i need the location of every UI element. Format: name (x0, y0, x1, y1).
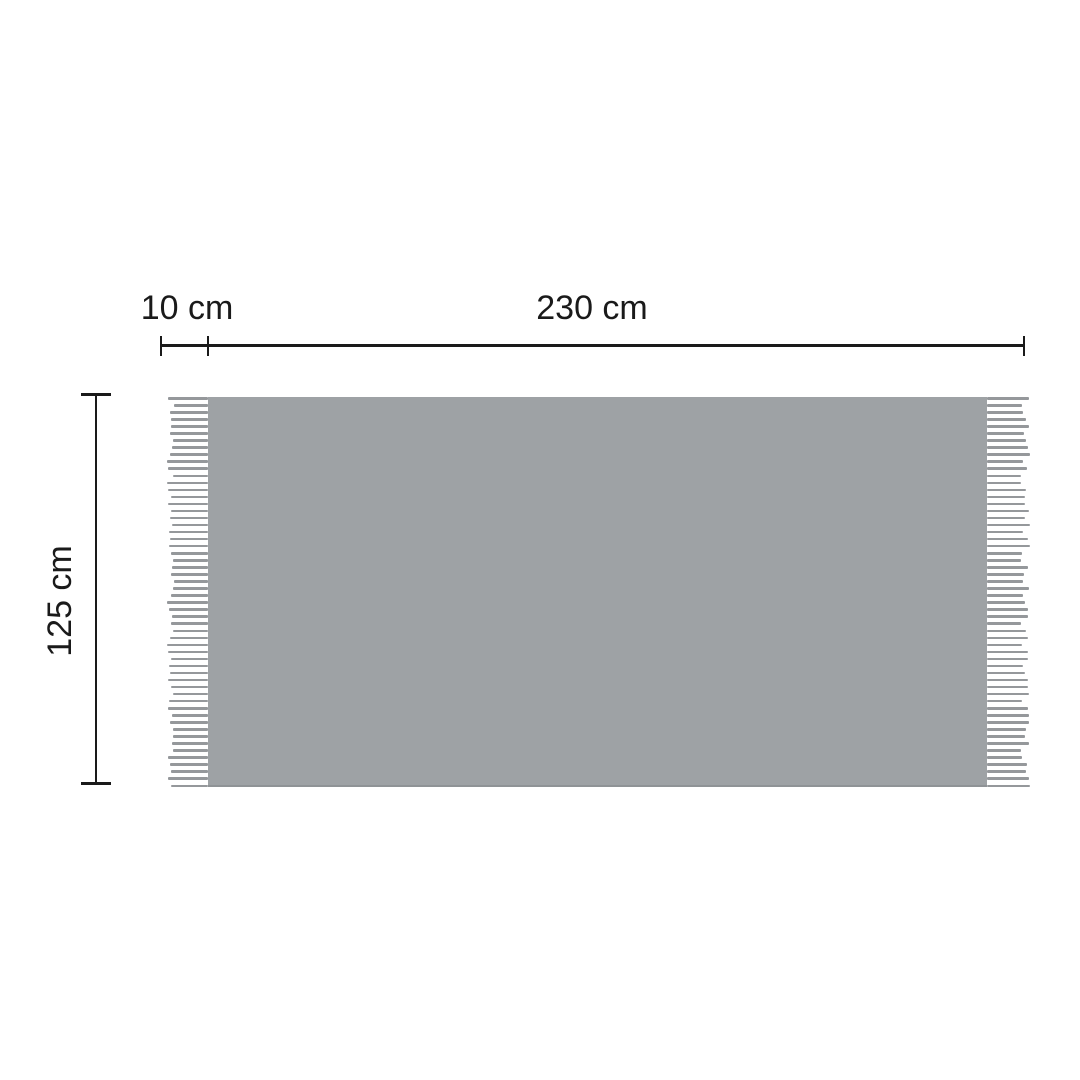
body-width-label: 230 cm (536, 291, 648, 325)
fringe-stroke (170, 721, 208, 724)
fringe-stroke (987, 475, 1021, 478)
width-dimension-line (161, 344, 1025, 347)
width-dimension-tick-left (160, 336, 162, 356)
fringe-stroke (987, 531, 1023, 534)
blanket-body (208, 397, 987, 787)
fringe-stroke (172, 615, 208, 618)
fringe-stroke (168, 467, 208, 470)
height-dimension-line (95, 394, 97, 784)
fringe-stroke (987, 672, 1025, 675)
fringe-stroke (987, 510, 1029, 513)
fringe-stroke (987, 446, 1028, 449)
fringe-stroke (174, 404, 208, 407)
fringe-stroke (171, 622, 208, 625)
fringe-stroke (987, 622, 1021, 625)
fringe-stroke (987, 742, 1029, 745)
fringe-stroke (169, 700, 208, 703)
fringe-stroke (987, 559, 1021, 562)
fringe-stroke (170, 538, 208, 541)
fringe-stroke (170, 517, 209, 520)
fringe-stroke (987, 644, 1022, 647)
height-dimension-cap-bottom (81, 782, 111, 785)
fringe-stroke (987, 665, 1023, 668)
fringe-stroke (987, 489, 1026, 492)
fringe-stroke (173, 439, 208, 442)
fringe-stroke (987, 608, 1028, 611)
width-dimension-tick-right (1023, 336, 1025, 356)
fringe-stroke (987, 538, 1028, 541)
fringe-stroke (171, 496, 208, 499)
fringe-stroke (169, 545, 208, 548)
fringe-stroke (167, 644, 208, 647)
fringe-stroke (168, 777, 208, 780)
fringe-stroke (167, 460, 208, 463)
fringe-stroke (987, 749, 1021, 752)
fringe-stroke (170, 672, 208, 675)
fringe-stroke (987, 630, 1026, 633)
fringe-stroke (987, 714, 1029, 717)
fringe-stroke (171, 418, 208, 421)
fringe-stroke (987, 756, 1022, 759)
fringe-stroke (171, 594, 208, 597)
fringe-stroke (170, 432, 208, 435)
fringe-stroke (987, 785, 1030, 788)
fringe-stroke (987, 615, 1028, 618)
product-dimension-diagram: 10 cm 230 cm 125 cm (0, 0, 1080, 1080)
fringe-stroke (171, 552, 208, 555)
fringe-stroke (987, 735, 1025, 738)
fringe-stroke (987, 679, 1028, 682)
fringe-stroke (987, 601, 1025, 604)
fringe-stroke (172, 714, 208, 717)
blanket-fringe-right (987, 397, 1030, 787)
fringe-stroke (169, 608, 208, 611)
fringe-stroke (168, 489, 208, 492)
fringe-stroke (987, 763, 1027, 766)
fringe-stroke (987, 397, 1029, 400)
fringe-stroke (171, 686, 208, 689)
fringe-stroke (987, 482, 1021, 485)
fringe-stroke (171, 785, 208, 788)
fringe-stroke (167, 601, 208, 604)
fringe-stroke (167, 482, 208, 485)
fringe-width-label: 10 cm (141, 291, 234, 325)
fringe-stroke (987, 418, 1026, 421)
fringe-stroke (172, 566, 208, 569)
fringe-stroke (987, 721, 1029, 724)
fringe-stroke (168, 503, 209, 506)
fringe-stroke (169, 531, 208, 534)
blanket-fringe-left (167, 397, 208, 787)
fringe-stroke (987, 425, 1029, 428)
fringe-stroke (168, 707, 208, 710)
fringe-stroke (168, 756, 208, 759)
fringe-stroke (172, 446, 208, 449)
fringe-stroke (168, 397, 209, 400)
width-dimension-tick-middle (207, 336, 209, 356)
fringe-stroke (173, 735, 208, 738)
fringe-stroke (987, 453, 1030, 456)
fringe-stroke (987, 777, 1029, 780)
fringe-stroke (987, 517, 1025, 520)
fringe-stroke (171, 658, 208, 661)
fringe-stroke (987, 658, 1028, 661)
fringe-stroke (173, 693, 209, 696)
fringe-stroke (987, 545, 1030, 548)
fringe-stroke (987, 651, 1028, 654)
fringe-stroke (168, 651, 208, 654)
fringe-stroke (987, 580, 1023, 583)
fringe-stroke (172, 742, 208, 745)
fringe-stroke (987, 524, 1030, 527)
fringe-stroke (987, 686, 1028, 689)
fringe-stroke (987, 573, 1024, 576)
fringe-stroke (173, 475, 208, 478)
fringe-stroke (172, 524, 208, 527)
fringe-stroke (170, 637, 208, 640)
fringe-stroke (987, 693, 1029, 696)
fringe-stroke (987, 460, 1023, 463)
fringe-stroke (174, 580, 208, 583)
fringe-stroke (173, 728, 208, 731)
fringe-stroke (987, 700, 1022, 703)
fringe-stroke (987, 587, 1029, 590)
fringe-stroke (168, 679, 209, 682)
fringe-stroke (987, 432, 1024, 435)
fringe-stroke (170, 411, 208, 414)
fringe-stroke (987, 496, 1025, 499)
fringe-stroke (987, 594, 1023, 597)
fringe-stroke (987, 411, 1023, 414)
height-dimension-cap-top (81, 393, 111, 396)
fringe-stroke (171, 510, 208, 513)
fringe-stroke (171, 425, 208, 428)
fringe-stroke (170, 453, 208, 456)
fringe-stroke (171, 770, 208, 773)
fringe-stroke (170, 763, 208, 766)
fringe-stroke (987, 637, 1028, 640)
fringe-stroke (987, 707, 1028, 710)
fringe-stroke (987, 770, 1026, 773)
fringe-stroke (173, 630, 208, 633)
fringe-stroke (987, 404, 1022, 407)
fringe-stroke (173, 587, 208, 590)
fringe-stroke (987, 552, 1022, 555)
fringe-stroke (987, 439, 1026, 442)
fringe-stroke (987, 467, 1027, 470)
fringe-stroke (987, 503, 1025, 506)
fringe-stroke (987, 728, 1026, 731)
fringe-stroke (173, 749, 208, 752)
fringe-stroke (987, 566, 1028, 569)
fringe-stroke (171, 573, 209, 576)
height-label: 125 cm (43, 545, 77, 657)
fringe-stroke (173, 559, 208, 562)
fringe-stroke (169, 665, 208, 668)
